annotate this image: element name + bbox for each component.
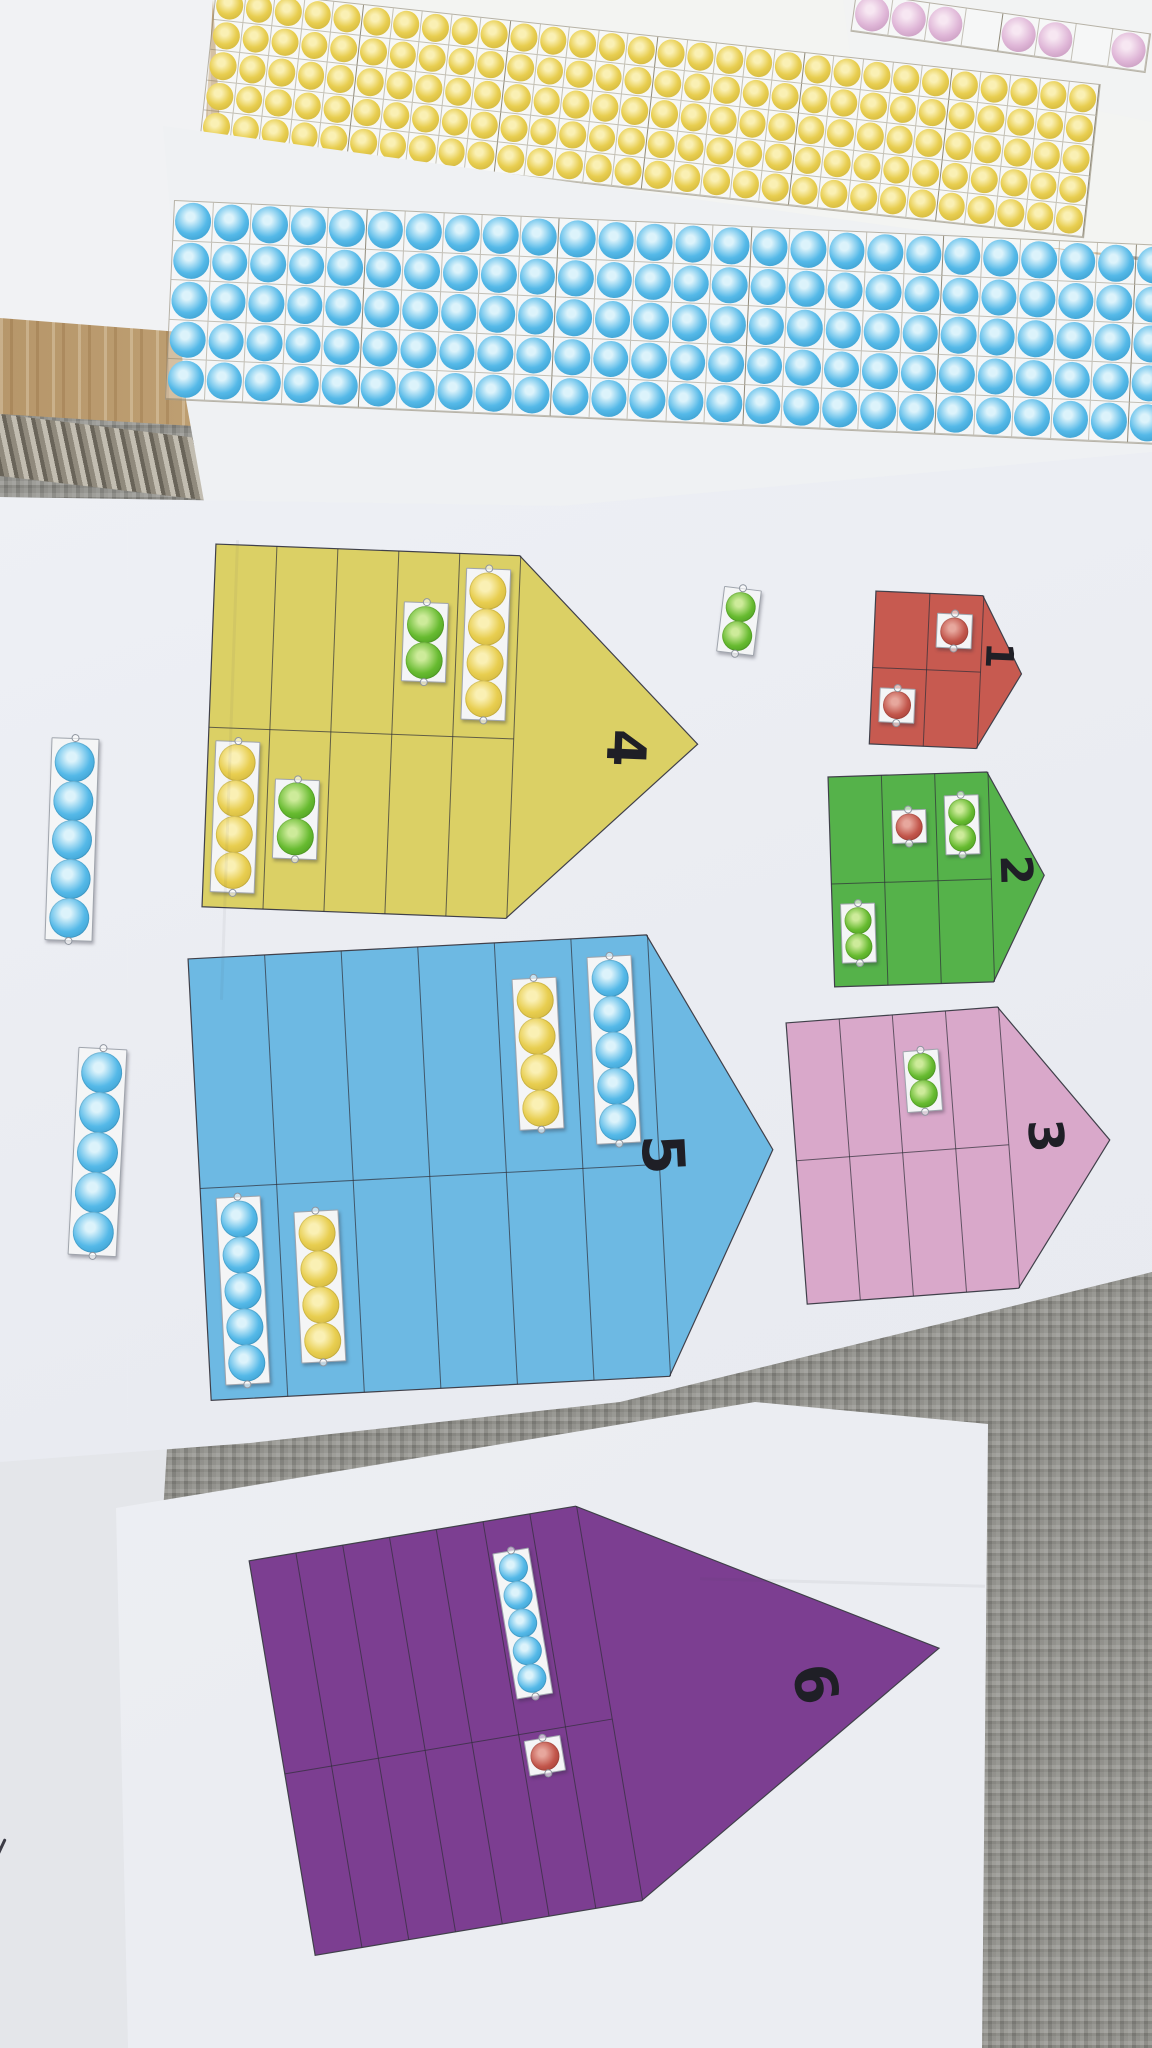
bead-strip-yellow-4[interactable] xyxy=(293,1210,346,1364)
bead-yellow xyxy=(715,45,744,75)
bead-cell xyxy=(287,246,327,287)
bead-blue xyxy=(942,276,979,314)
bead-blue xyxy=(826,271,863,309)
bead-yellow xyxy=(980,73,1009,103)
bead-blue xyxy=(674,225,711,263)
bead-blue xyxy=(1092,362,1129,400)
bead-blue xyxy=(1015,359,1052,397)
pencil-board-2: 2 xyxy=(827,769,1047,986)
bead-cell xyxy=(974,396,1014,437)
bead-cell xyxy=(858,90,891,124)
bead-yellow xyxy=(555,150,584,180)
bead-cell xyxy=(1024,200,1057,234)
bead-cell xyxy=(740,77,773,111)
bead-cell xyxy=(977,317,1017,358)
bead-cell xyxy=(678,101,711,135)
bead-cell xyxy=(1017,279,1057,320)
bead-cell xyxy=(823,310,863,351)
bead-strip-green-2[interactable] xyxy=(716,586,762,656)
bead-cell xyxy=(435,371,475,412)
bead-yellow xyxy=(623,65,652,95)
bead-strip-green-2[interactable] xyxy=(943,794,980,855)
bead-blue xyxy=(1019,280,1056,318)
bead-cell xyxy=(743,47,776,81)
bead-yellow xyxy=(597,32,626,62)
bead-blue xyxy=(784,348,821,386)
bead-pink xyxy=(926,5,965,44)
bead-cell xyxy=(439,292,479,333)
bead-cell xyxy=(880,154,913,188)
bead-cell xyxy=(208,282,248,323)
bead-cell xyxy=(1054,203,1087,237)
bead-blue xyxy=(634,263,671,301)
bead-cell xyxy=(975,103,1008,137)
bead-cell xyxy=(1016,318,1056,359)
bead-cell xyxy=(243,362,283,403)
bead-cell xyxy=(884,123,917,157)
bead-yellow xyxy=(411,104,440,134)
bead-cell xyxy=(1108,29,1150,72)
bead-blue xyxy=(400,331,437,369)
bead-blue xyxy=(227,1343,266,1382)
bead-yellow xyxy=(297,1214,336,1253)
bead-blue xyxy=(1020,241,1057,279)
bead-cell xyxy=(972,133,1005,167)
bead-yellow xyxy=(355,67,384,97)
bead-yellow xyxy=(738,109,767,139)
bead-blue xyxy=(672,264,709,302)
bead-yellow xyxy=(793,145,822,175)
bead-yellow xyxy=(826,118,855,148)
bead-cell xyxy=(897,392,937,433)
bead-cell xyxy=(1014,358,1054,399)
bead-yellow xyxy=(797,115,826,145)
bead-blue xyxy=(174,202,211,240)
bead-blue xyxy=(290,207,327,245)
bead-cell xyxy=(822,147,855,181)
bead-cell xyxy=(789,175,822,209)
bead-strip-yellow-4[interactable] xyxy=(511,977,564,1131)
bead-cell xyxy=(890,63,923,97)
bead-cell xyxy=(629,340,669,381)
bead-blue xyxy=(398,370,435,408)
bead-cell xyxy=(498,112,531,146)
bead-yellow xyxy=(852,152,881,182)
bead-blue xyxy=(905,235,942,273)
bead-red xyxy=(529,1739,562,1772)
bead-yellow xyxy=(466,643,504,681)
bead-blue xyxy=(746,347,783,385)
bead-cell xyxy=(648,98,681,132)
bead-yellow xyxy=(532,86,561,116)
bead-cell xyxy=(475,48,508,82)
bead-cell xyxy=(551,376,591,417)
bead-yellow xyxy=(1029,171,1058,201)
bead-cell xyxy=(787,268,827,309)
pencil-board-1: 1 xyxy=(868,590,1025,749)
bead-blue xyxy=(482,216,519,254)
bead-blue xyxy=(440,293,477,331)
bead-cell xyxy=(671,162,704,196)
bead-cell xyxy=(295,60,328,94)
bead-yellow xyxy=(496,144,525,174)
bead-cell xyxy=(712,225,752,266)
bead-cell xyxy=(906,187,939,221)
bead-yellow xyxy=(521,1089,560,1128)
bead-blue xyxy=(980,278,1017,316)
bead-cell xyxy=(848,181,881,215)
bead-cell xyxy=(593,61,626,95)
bead-yellow xyxy=(466,141,495,171)
bead-yellow xyxy=(646,129,675,159)
bead-blue xyxy=(497,1551,530,1584)
bead-cell xyxy=(420,11,453,45)
bead-cell xyxy=(1031,139,1064,173)
bead-cell xyxy=(858,390,898,431)
bead-cell xyxy=(961,9,1003,52)
bead-cell xyxy=(706,344,746,385)
bead-cell xyxy=(512,375,552,416)
bead-yellow xyxy=(447,46,476,76)
bead-blue xyxy=(1090,402,1127,440)
bead-blue xyxy=(443,214,480,252)
bead-cell xyxy=(519,217,559,258)
bead-cell xyxy=(475,333,515,374)
bead-blue xyxy=(1052,400,1089,438)
bead-cell xyxy=(877,184,910,218)
bead-blue xyxy=(557,259,594,297)
bead-cell xyxy=(670,303,710,344)
bead-blue xyxy=(898,393,935,431)
bead-cell xyxy=(556,258,596,299)
bead-cell xyxy=(674,131,707,165)
bead-blue xyxy=(597,1067,636,1106)
bead-blue xyxy=(246,324,283,362)
bead-yellow xyxy=(215,0,244,21)
bead-cell xyxy=(320,366,360,407)
bead-blue xyxy=(213,204,250,242)
bead-cell xyxy=(399,330,439,371)
bead-blue xyxy=(630,341,667,379)
bead-cell xyxy=(746,306,786,347)
bead-blue xyxy=(363,290,400,328)
bead-blue xyxy=(506,1606,539,1639)
bead-yellow xyxy=(764,142,793,172)
bead-cell xyxy=(210,242,250,283)
bead-cell xyxy=(245,323,285,364)
bead-blue xyxy=(978,318,1015,356)
bead-blue xyxy=(975,397,1012,435)
bead-cell xyxy=(537,24,570,58)
bead-blue xyxy=(1096,283,1133,321)
bead-yellow xyxy=(829,88,858,118)
bead-yellow xyxy=(529,117,558,147)
bead-cell xyxy=(942,130,975,164)
bead-cell xyxy=(358,368,398,409)
bead-yellow xyxy=(1025,201,1054,231)
bead-cell xyxy=(1129,363,1152,404)
bead-cell xyxy=(327,208,367,249)
bead-cell xyxy=(827,231,867,272)
bead-yellow xyxy=(944,131,973,161)
bead-cell xyxy=(1096,243,1136,284)
bead-blue xyxy=(859,391,896,429)
bead-cell xyxy=(748,267,788,308)
bead-cell xyxy=(362,289,402,330)
bead-yellow xyxy=(470,110,499,140)
bead-cell xyxy=(527,116,560,150)
bead-cell xyxy=(1054,320,1094,361)
bead-cell xyxy=(501,82,534,116)
bead-yellow xyxy=(437,137,466,167)
bead-cell xyxy=(743,385,783,426)
bead-yellow xyxy=(469,571,507,609)
bead-cell xyxy=(969,163,1002,197)
photo-scene: 123456 xyxy=(0,0,1152,2048)
bead-strip-green-2[interactable] xyxy=(401,601,449,683)
bead-yellow xyxy=(234,85,263,115)
bead-yellow xyxy=(565,59,594,89)
bead-cell xyxy=(942,236,982,277)
bead-strip-blue-5[interactable] xyxy=(44,737,99,942)
bead-blue xyxy=(552,377,589,415)
pencil-number-5: 5 xyxy=(633,1133,693,1176)
bead-cell xyxy=(236,53,269,87)
bead-cell xyxy=(1052,360,1092,401)
bead-cell xyxy=(1128,403,1152,444)
bead-strip-red-1[interactable] xyxy=(891,809,927,844)
bead-cell xyxy=(212,203,252,244)
bead-yellow xyxy=(241,24,270,54)
bead-cell xyxy=(616,125,649,159)
bead-cell xyxy=(246,283,286,324)
bead-blue xyxy=(326,249,363,287)
bead-cell xyxy=(281,364,321,405)
bead-strip-yellow-4[interactable] xyxy=(210,740,261,894)
bead-blue xyxy=(707,345,744,383)
bead-cell xyxy=(673,224,713,265)
bead-pink xyxy=(853,0,892,34)
bead-blue xyxy=(592,340,629,378)
bead-yellow xyxy=(1035,110,1064,140)
bead-cell xyxy=(1012,397,1052,438)
bead-pink xyxy=(1109,30,1148,69)
bead-blue xyxy=(828,232,865,270)
bead-cell xyxy=(437,332,477,373)
bead-green xyxy=(405,641,443,679)
bead-cell xyxy=(567,27,600,61)
bead-yellow xyxy=(800,85,829,115)
bead-strip-green-2[interactable] xyxy=(840,903,877,964)
bead-yellow xyxy=(643,160,672,190)
bead-blue xyxy=(225,1307,264,1346)
bead-cell xyxy=(822,349,862,390)
bead-blue xyxy=(867,234,904,272)
bead-yellow xyxy=(849,182,878,212)
bead-yellow xyxy=(888,94,917,124)
bead-yellow xyxy=(211,21,240,51)
bead-yellow xyxy=(1068,83,1097,113)
bead-cell xyxy=(204,80,237,114)
bead-blue xyxy=(671,304,708,342)
bead-cell xyxy=(818,178,851,212)
bead-blue xyxy=(590,379,627,417)
bead-strip-green-2[interactable] xyxy=(903,1048,944,1113)
bead-cell xyxy=(596,220,636,261)
bead-cell xyxy=(495,143,528,177)
bead-yellow xyxy=(408,134,437,164)
bead-cell xyxy=(612,156,645,190)
bead-cell xyxy=(714,43,747,77)
bead-cell xyxy=(558,219,598,260)
bead-cell xyxy=(325,247,365,288)
bead-cell xyxy=(516,296,556,337)
bead-yellow xyxy=(649,99,678,129)
bead-cell xyxy=(563,58,596,92)
bead-cell xyxy=(946,99,979,133)
bead-strip-green-2[interactable] xyxy=(272,778,320,860)
bead-blue xyxy=(823,350,860,388)
bead-blue xyxy=(744,386,781,424)
bead-yellow xyxy=(731,169,760,199)
bead-cell xyxy=(668,342,708,383)
bead-cell xyxy=(902,274,942,315)
bead-cell xyxy=(204,361,244,402)
bead-cell xyxy=(1037,79,1070,113)
bead-yellow xyxy=(940,161,969,191)
bead-cell xyxy=(708,304,748,345)
bead-blue xyxy=(53,780,94,821)
bead-strip-yellow-4[interactable] xyxy=(460,568,511,722)
bead-cell xyxy=(730,168,763,202)
bead-yellow xyxy=(855,121,884,151)
bead-yellow xyxy=(620,96,649,126)
pencil-board-5: 5 xyxy=(187,928,784,1399)
bead-cell xyxy=(733,138,766,172)
bead-blue xyxy=(936,395,973,433)
bead-blue xyxy=(54,741,95,782)
bead-blue xyxy=(405,213,442,251)
bead-cell xyxy=(910,157,943,191)
bead-yellow xyxy=(303,1321,342,1360)
bead-cell xyxy=(789,229,829,270)
bead-yellow xyxy=(911,158,940,188)
bead-blue xyxy=(1094,323,1131,361)
bead-yellow xyxy=(770,81,799,111)
bead-cell xyxy=(652,67,685,101)
bead-red xyxy=(895,813,923,841)
bead-cell xyxy=(745,346,785,387)
bead-cell xyxy=(593,299,633,340)
bead-cell xyxy=(299,29,332,63)
bead-cell xyxy=(995,197,1028,231)
bead-yellow xyxy=(499,113,528,143)
bead-yellow xyxy=(301,1285,340,1324)
bead-yellow xyxy=(238,54,267,84)
bead-yellow xyxy=(329,33,358,63)
bead-green xyxy=(948,824,976,852)
bead-yellow xyxy=(1061,144,1090,174)
bead-cell xyxy=(769,80,802,114)
bead-cell xyxy=(285,285,325,326)
bead-green xyxy=(907,1052,937,1082)
bead-cell xyxy=(478,18,511,52)
bead-blue xyxy=(709,305,746,343)
bead-yellow xyxy=(1065,113,1094,143)
bead-strip-red-1[interactable] xyxy=(524,1735,566,1777)
bead-cell xyxy=(935,394,975,435)
bead-blue xyxy=(367,211,404,249)
bead-cell xyxy=(936,191,969,225)
bead-blue xyxy=(206,362,243,400)
bead-cell xyxy=(439,106,472,140)
bead-cell xyxy=(446,45,479,79)
bead-green xyxy=(276,818,314,856)
bead-yellow xyxy=(908,189,937,219)
bead-blue xyxy=(595,1031,634,1070)
bead-yellow xyxy=(205,81,234,111)
bead-strip-red-1[interactable] xyxy=(878,687,915,724)
bead-cell xyxy=(596,31,629,65)
bead-blue xyxy=(1053,361,1090,399)
bead-cell xyxy=(998,167,1031,201)
bead-blue xyxy=(594,300,631,338)
bead-cell xyxy=(1005,106,1038,140)
bead-pink xyxy=(1036,20,1075,59)
bead-strip-red-1[interactable] xyxy=(936,613,973,650)
bead-yellow xyxy=(561,89,590,119)
bead-cell xyxy=(589,91,622,125)
bead-yellow xyxy=(617,126,646,156)
bead-cell xyxy=(479,254,519,295)
bead-cell xyxy=(998,14,1040,57)
bead-cell xyxy=(206,321,246,362)
bead-blue xyxy=(480,256,517,294)
bead-yellow xyxy=(293,91,322,121)
bead-cell xyxy=(240,23,273,57)
bead-yellow xyxy=(878,185,907,215)
bead-blue xyxy=(403,252,440,290)
bead-blue xyxy=(1057,282,1094,320)
bead-cell xyxy=(851,151,884,185)
bead-blue xyxy=(477,334,514,372)
bead-pink xyxy=(889,0,928,39)
bead-yellow xyxy=(803,54,832,84)
bead-green xyxy=(909,1079,939,1109)
bead-cell xyxy=(1067,82,1100,116)
bead-blue xyxy=(325,288,362,326)
bead-cell xyxy=(354,66,387,100)
bead-yellow xyxy=(1006,107,1035,137)
bead-blue xyxy=(50,858,91,899)
bead-yellow xyxy=(417,43,446,73)
bead-blue xyxy=(636,223,673,261)
bead-cell xyxy=(710,265,750,306)
bead-blue xyxy=(901,314,938,352)
bead-blue xyxy=(598,1103,637,1142)
bead-cell xyxy=(1056,281,1096,322)
bead-blue xyxy=(251,206,288,244)
bead-cell xyxy=(701,165,734,199)
bead-yellow xyxy=(679,102,708,132)
bead-yellow xyxy=(1003,137,1032,167)
bead-yellow xyxy=(362,6,391,36)
bead-blue xyxy=(632,302,669,340)
bead-cell xyxy=(1051,399,1091,440)
bead-yellow xyxy=(359,37,388,67)
bead-yellow xyxy=(300,30,329,60)
bead-yellow xyxy=(885,125,914,155)
